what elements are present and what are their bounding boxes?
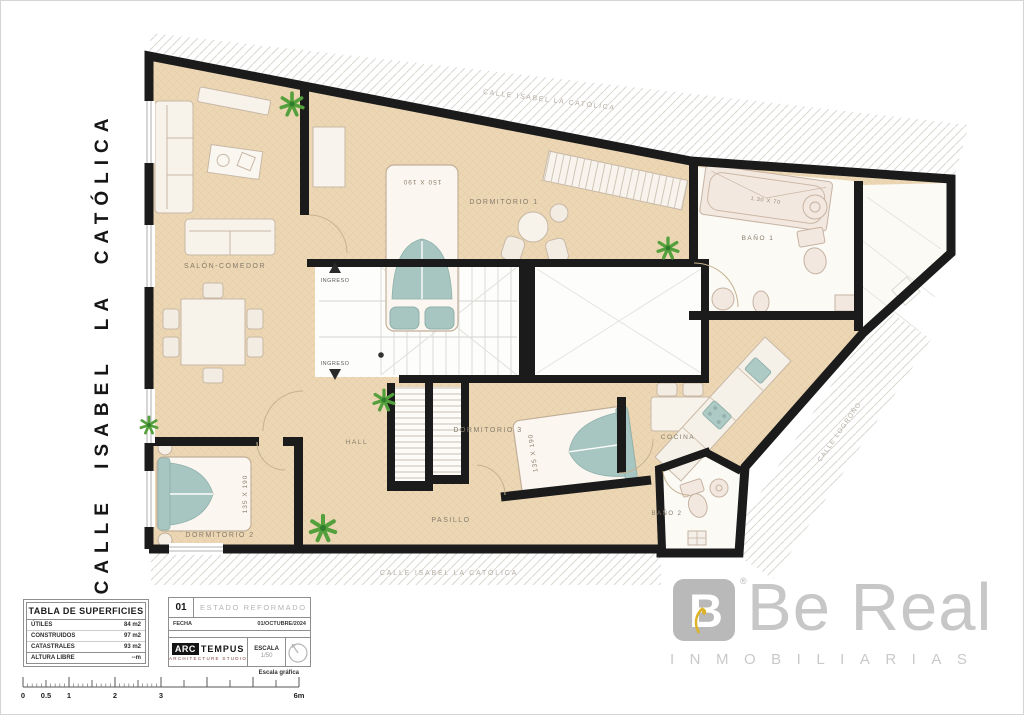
studio-subtitle: ARCHITECTURE STUDIO bbox=[169, 656, 247, 661]
table-row: ÚTILES 84 m2 bbox=[27, 620, 145, 630]
table-row: ALTURA LIBRE --m bbox=[27, 652, 145, 663]
ingreso-label-top: INGRESO bbox=[321, 278, 350, 284]
sheet-title: ESTADO REFORMADO bbox=[194, 598, 310, 617]
label-bano-1: BAÑO 1 bbox=[742, 233, 775, 242]
row-label: CONSTRUIDOS bbox=[31, 633, 75, 639]
floor-plan-sheet: CALLE ISABEL LA CATÓLICA CALLE ISABEL LA… bbox=[0, 0, 1024, 715]
table-row: CONSTRUIDOS 97 m2 bbox=[27, 630, 145, 641]
brand-monogram: B bbox=[689, 584, 723, 637]
ingreso-label-bottom: INGRESO bbox=[321, 361, 350, 367]
tick-1: 1 bbox=[67, 691, 71, 700]
row-value: 93 m2 bbox=[124, 644, 141, 650]
date-value: 01/OCTUBRE/2024 bbox=[257, 621, 306, 627]
row-value: 84 m2 bbox=[124, 622, 141, 628]
studio-logo: ARC TEMPUS ARCHITECTURE STUDIO bbox=[169, 638, 247, 666]
row-value: 97 m2 bbox=[124, 633, 141, 639]
date-label: FECHA bbox=[173, 621, 192, 627]
tick-6m: 6m bbox=[294, 691, 305, 700]
sheet-number: 01 bbox=[169, 598, 194, 617]
row-label: ÚTILES bbox=[31, 622, 52, 628]
surface-table-title: TABLA DE SUPERFICIES bbox=[27, 603, 145, 620]
label-bano-2: BAÑO 2 bbox=[651, 510, 682, 517]
street-name-bottom: CALLE ISABEL LA CATÓLICA bbox=[380, 568, 518, 577]
tick-05: 0.5 bbox=[41, 691, 51, 700]
brand-name: Be Real bbox=[747, 574, 992, 641]
tick-0: 0 bbox=[21, 691, 25, 700]
scale-label: ESCALA bbox=[254, 646, 279, 652]
row-label: ALTURA LIBRE bbox=[31, 655, 75, 661]
spacer-row bbox=[169, 631, 310, 638]
label-dormitorio-1: DORMITORIO 1 bbox=[469, 199, 538, 206]
lightwell bbox=[535, 267, 703, 375]
tick-3: 3 bbox=[159, 691, 163, 700]
graphic-scale: Escala gráfica 0 0.5 1 2 3 6m bbox=[16, 667, 316, 711]
brand-subtitle: INMOBILIARIAS bbox=[670, 651, 982, 668]
bed-2-size-label: 135 X 190 bbox=[242, 475, 249, 514]
registered-mark: ® bbox=[740, 576, 747, 586]
scale-caption: Escala gráfica bbox=[259, 670, 300, 676]
tick-2: 2 bbox=[113, 691, 117, 700]
table-row: CATASTRALES 93 m2 bbox=[27, 641, 145, 652]
title-block: 01 ESTADO REFORMADO FECHA 01/OCTUBRE/202… bbox=[168, 597, 311, 667]
brand-logo-mark: B bbox=[673, 579, 743, 645]
street-name-left: CALLE ISABEL LA CATÓLICA bbox=[91, 112, 113, 595]
label-cocina: COCINA bbox=[661, 434, 695, 441]
scale-value: 1/50 bbox=[261, 653, 273, 659]
side-court-floor bbox=[862, 183, 947, 331]
label-pasillo: PASILLO bbox=[431, 517, 470, 524]
north-arrow-icon bbox=[286, 638, 310, 666]
surface-table: TABLA DE SUPERFICIES ÚTILES 84 m2 CONSTR… bbox=[23, 599, 149, 667]
label-hall: HALL bbox=[346, 439, 368, 446]
label-salon: SALÓN-COMEDOR bbox=[184, 261, 266, 270]
label-dormitorio-3: DORMITORIO 3 bbox=[453, 427, 522, 434]
bed-1-size-label: 150 X 190 bbox=[403, 178, 442, 185]
studio-logo-arc: ARC bbox=[172, 643, 199, 655]
row-label: CATASTRALES bbox=[31, 644, 75, 650]
label-dormitorio-2: DORMITORIO 2 bbox=[185, 532, 254, 539]
row-value: --m bbox=[132, 655, 141, 661]
studio-logo-tempus: TEMPUS bbox=[201, 644, 245, 654]
